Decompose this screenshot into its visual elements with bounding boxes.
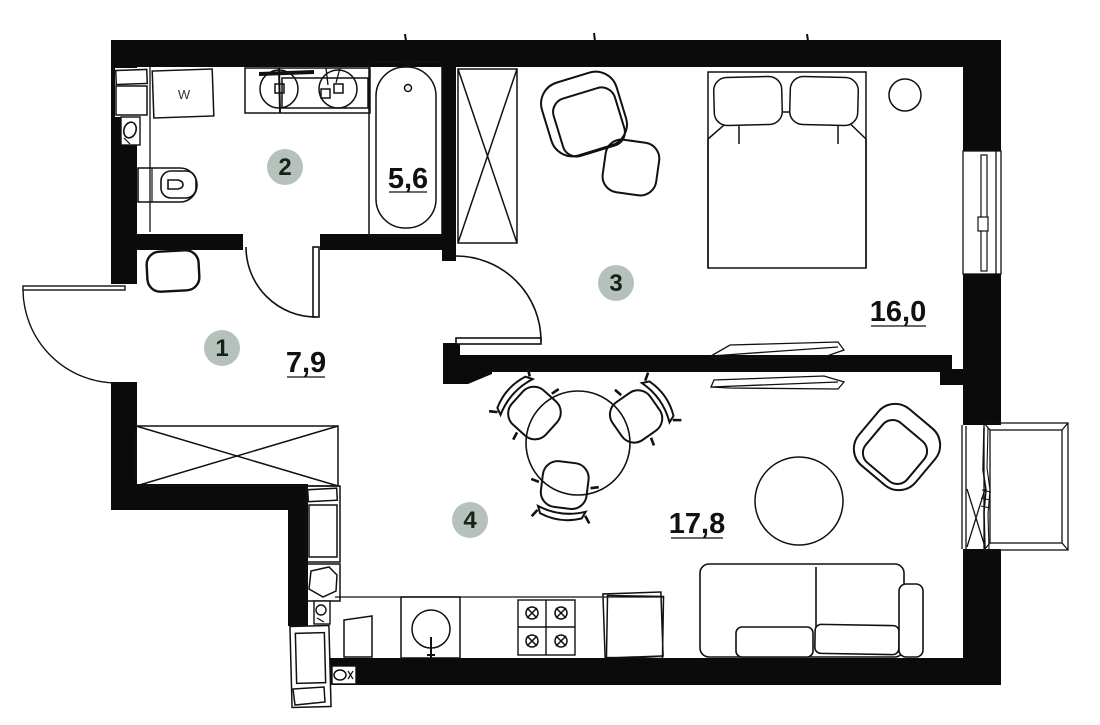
svg-text:17,8: 17,8 [669, 508, 725, 540]
svg-text:5,6: 5,6 [388, 163, 428, 195]
svg-text:2: 2 [278, 154, 291, 181]
svg-text:7,9: 7,9 [286, 347, 326, 379]
svg-text:16,0: 16,0 [870, 296, 926, 328]
svg-text:3: 3 [609, 270, 622, 297]
svg-text:W: W [178, 87, 191, 102]
svg-text:1: 1 [215, 335, 228, 362]
svg-text:4: 4 [463, 507, 477, 534]
